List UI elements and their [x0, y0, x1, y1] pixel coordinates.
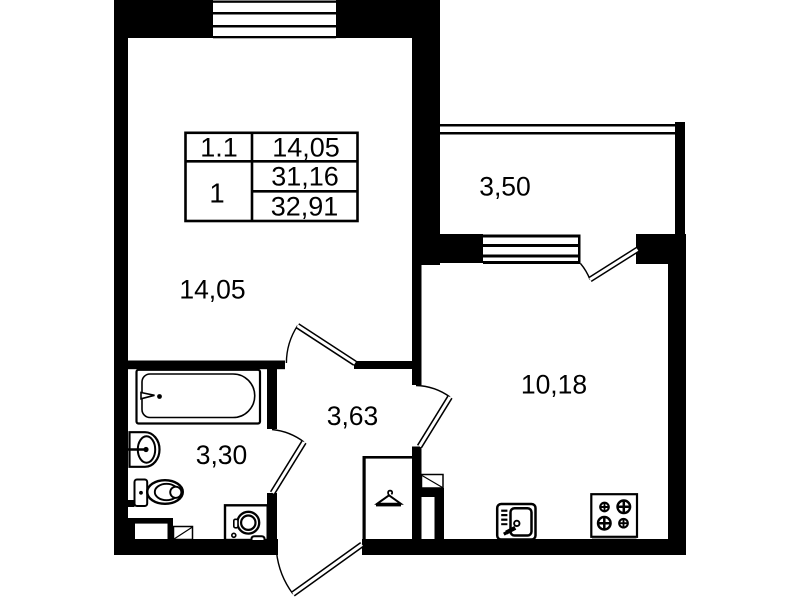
svg-text:3,63: 3,63 — [327, 401, 379, 431]
svg-text:3,30: 3,30 — [196, 440, 248, 470]
svg-text:14,05: 14,05 — [272, 133, 340, 163]
svg-text:14,05: 14,05 — [179, 275, 245, 305]
svg-text:10,18: 10,18 — [521, 370, 587, 400]
svg-text:1: 1 — [209, 178, 224, 209]
svg-text:3,50: 3,50 — [479, 172, 531, 202]
svg-text:32,91: 32,91 — [271, 192, 339, 222]
svg-text:1.1: 1.1 — [200, 133, 238, 163]
svg-text:31,16: 31,16 — [271, 162, 339, 192]
